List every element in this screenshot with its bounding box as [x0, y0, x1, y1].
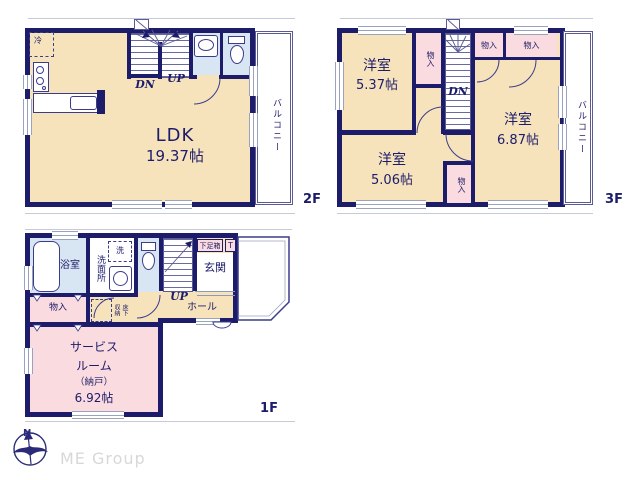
- wall: [127, 33, 131, 79]
- stairs-1f: [163, 238, 193, 292]
- eave-line-2f: [28, 18, 295, 19]
- window: [165, 200, 192, 209]
- closet-left-3f-label: 物入: [421, 44, 435, 74]
- wall: [471, 105, 475, 207]
- stairs-2f-cap: [134, 19, 149, 30]
- wall: [337, 130, 416, 135]
- entrance-step-line: [195, 291, 235, 292]
- underfloor-storage-label: 床下: [119, 300, 127, 320]
- window: [112, 200, 162, 209]
- window: [23, 99, 32, 135]
- wall: [189, 75, 197, 79]
- stairs-3f-cap: [446, 19, 460, 30]
- wall: [189, 33, 193, 79]
- bathroom-label: 浴室: [54, 260, 86, 273]
- ldk-name-label: LDK: [130, 126, 220, 146]
- window: [24, 266, 33, 290]
- hall-label: ホール: [178, 302, 226, 315]
- stairs-2f-up-label: UP: [163, 73, 189, 85]
- stairs-3f-dn-label: DN: [446, 86, 470, 98]
- wall: [412, 84, 441, 88]
- washroom-label: 洗面所: [92, 244, 105, 292]
- closet-top1-3f-label: 物入: [475, 41, 503, 51]
- washer-label: 洗: [112, 246, 128, 256]
- closet-top2-3f-label: 物入: [506, 41, 557, 51]
- wall: [97, 90, 105, 114]
- porch-inner-line: [238, 241, 285, 316]
- stove-burner-icon: [36, 66, 44, 74]
- kitchen-sink-icon: [70, 96, 97, 110]
- eave-line-1f: [25, 229, 292, 230]
- service-room-size-label: 6.92帖: [30, 392, 158, 407]
- floor2-label: 2F: [297, 193, 327, 209]
- window: [558, 86, 567, 118]
- underfloor-storage-box: [91, 299, 112, 322]
- fridge-label: 冷: [31, 36, 45, 46]
- closet-1f-label: 物入: [36, 303, 80, 316]
- window: [356, 200, 426, 209]
- window: [488, 200, 548, 209]
- room-b-size-label: 6.87帖: [473, 134, 563, 150]
- floor1-label: 1F: [254, 402, 284, 418]
- entrance-label: 玄関: [199, 262, 231, 276]
- window: [558, 124, 567, 150]
- window: [358, 26, 406, 35]
- ground-line-1f: [25, 421, 295, 422]
- stairs-3f: [445, 33, 471, 130]
- wall: [219, 75, 252, 79]
- window: [249, 113, 258, 147]
- window: [24, 348, 33, 374]
- brand-logo-text: ME Group: [60, 450, 150, 470]
- underfloor-storage-label: 収納: [111, 300, 119, 320]
- entrance-porch: [238, 237, 289, 320]
- sink-bowl-icon: [198, 39, 214, 51]
- window: [249, 66, 258, 96]
- window: [52, 231, 78, 240]
- room-c-name-label: 洋室: [342, 152, 442, 170]
- window: [23, 75, 32, 89]
- wall: [441, 33, 445, 134]
- window: [514, 26, 548, 35]
- room-a-name-label: 洋室: [337, 58, 417, 76]
- stove-burner-icon: [36, 77, 44, 85]
- room-c-size-label: 5.06帖: [342, 174, 442, 190]
- window: [196, 318, 220, 325]
- wall: [86, 297, 90, 322]
- compass-north-label: N: [23, 428, 31, 439]
- stove-burner-icon: [42, 86, 46, 90]
- floorplan-canvas: バルコニー DN UP 冷 LDK 19.37帖 2F バルコニー 洋室 5.3…: [0, 0, 640, 480]
- floor-line-2f: [25, 213, 295, 214]
- window: [72, 411, 124, 419]
- service-room-label-2: ルーム: [30, 360, 158, 376]
- floor3-label: 3F: [599, 193, 629, 209]
- service-room-label-3: （納戸）: [30, 378, 158, 390]
- stairs-2f-dn-label: DN: [132, 79, 158, 91]
- ldk-size-label: 19.37帖: [127, 148, 223, 166]
- room-b-name-label: 洋室: [475, 112, 561, 130]
- eave-line-3f: [340, 18, 593, 19]
- service-room-label-1: サービス: [30, 341, 158, 357]
- floor-line-3f: [337, 213, 593, 214]
- shoe-box-t-label: T: [225, 241, 236, 251]
- compass-icon: N: [13, 428, 48, 465]
- entrance-step-line: [197, 295, 235, 296]
- room-a-size-label: 5.37帖: [337, 79, 417, 95]
- wall: [158, 318, 163, 417]
- toilet-tank-icon: [141, 242, 156, 251]
- shoe-box-label: 下足箱: [197, 242, 223, 251]
- closet-bottom-3f-label: 物入: [452, 170, 466, 200]
- wall: [220, 33, 223, 75]
- window: [335, 62, 344, 110]
- balcony-3f-label: バルコニー: [570, 92, 586, 162]
- toilet-tank-icon: [228, 36, 245, 44]
- balcony-2f-label: バルコニー: [265, 90, 281, 160]
- washbasin-bowl-icon: [113, 271, 128, 286]
- wall: [475, 57, 561, 60]
